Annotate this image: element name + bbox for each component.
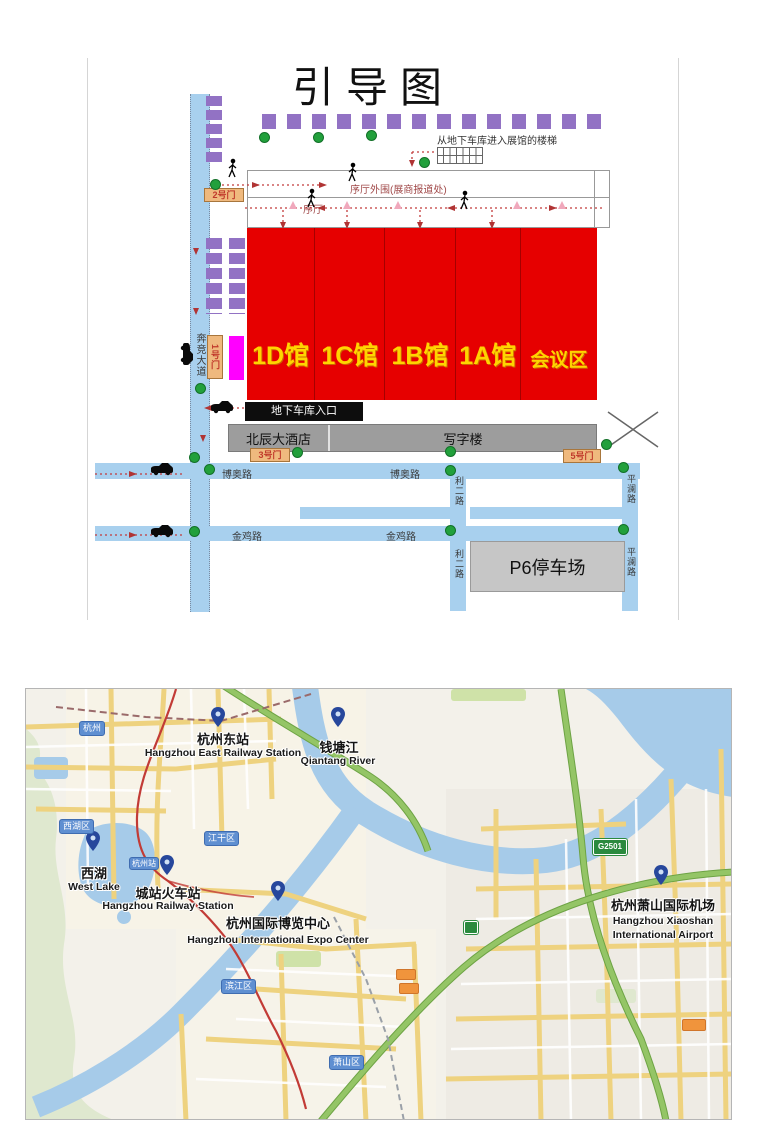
garage-entrance-sign: 地下车库入口 — [245, 402, 363, 421]
road-label: 利二路 — [453, 549, 466, 579]
booth-blocks-left-upper — [206, 96, 222, 164]
road-label: 奔竞大道 — [192, 333, 207, 377]
traffic-dot — [445, 465, 456, 476]
hall-label: 1C馆 — [315, 336, 384, 372]
hall-label: 1A馆 — [456, 336, 520, 372]
booth-blocks-top — [262, 114, 608, 129]
hall-1b: 1B馆 — [384, 228, 454, 400]
poi-label: 西湖 — [81, 863, 107, 882]
map-pin-west-lake — [86, 831, 100, 856]
traffic-dot — [618, 462, 629, 473]
gate-2: 2号门 — [204, 188, 244, 202]
hall-label: 1B馆 — [385, 336, 454, 372]
traffic-dot — [204, 464, 215, 475]
poi-label-en: Hangzhou Railway Station — [102, 900, 233, 912]
traffic-dot — [601, 439, 612, 450]
traffic-dot — [419, 157, 430, 168]
frame-left — [87, 58, 88, 620]
lobby-outer-label: 序厅外围(展商报道处) — [350, 181, 447, 196]
traffic-dot — [259, 132, 270, 143]
traffic-dot — [445, 446, 456, 457]
conference-area: 会议区 — [520, 228, 597, 400]
poi-label-en: Hangzhou Xiaoshan — [613, 915, 713, 927]
map-pin-qiantang — [331, 707, 345, 732]
poi-label-en: Hangzhou International Expo Center — [187, 934, 368, 946]
small-highway-shield — [464, 921, 478, 934]
poi-label-en: West Lake — [68, 881, 120, 893]
road-badge — [396, 969, 416, 980]
road-label: 金鸡路 — [232, 528, 262, 543]
stairs-icon — [437, 147, 483, 164]
traffic-dot — [210, 179, 221, 190]
road-mid-segment — [470, 507, 628, 519]
traffic-dot — [618, 524, 629, 535]
poi-label: 钱塘江 — [319, 737, 358, 756]
hall-label: 会议区 — [521, 345, 597, 372]
gate-5: 5号门 — [563, 449, 601, 463]
road-label: 博奥路 — [222, 466, 252, 481]
district-badge-jianggan: 江干区 — [204, 831, 239, 846]
stairs-note: 从地下车库进入展馆的楼梯 — [437, 132, 557, 147]
district-badge-binjiang: 滨江区 — [221, 979, 256, 994]
road-badge — [682, 1019, 706, 1031]
map-pin-expo — [271, 881, 285, 906]
road-label: 平澜路 — [625, 547, 638, 577]
traffic-dot — [445, 525, 456, 536]
poi-label: 杭州国际博览中心 — [226, 913, 330, 932]
road-boao — [95, 463, 640, 479]
office-label: 写字楼 — [330, 425, 596, 451]
exhibition-halls: 1D馆 1C馆 1B馆 1A馆 会议区 — [247, 228, 597, 400]
map-pin-airport — [654, 865, 668, 890]
lobby-divider — [248, 197, 609, 198]
gate-1: 1号门 — [207, 335, 223, 379]
page-title: 引导图 — [292, 54, 454, 115]
traffic-dot — [189, 452, 200, 463]
booth-blocks-left-b — [229, 238, 245, 314]
traffic-dot — [189, 526, 200, 537]
road-label: 平澜路 — [625, 474, 638, 504]
road-mid-segment — [300, 507, 456, 519]
traffic-dot — [195, 383, 206, 394]
gate-3: 3号门 — [250, 448, 290, 462]
traffic-dot — [292, 447, 303, 458]
lobby-box: 序厅外围(展商报道处) 序厅 — [247, 170, 610, 228]
poi-label-en: Hangzhou East Railway Station — [145, 747, 301, 759]
poi-label-en: Qiantang River — [301, 755, 376, 767]
district-badge-xiaoshan: 萧山区 — [329, 1055, 364, 1070]
poi-label: 杭州东站 — [197, 729, 249, 748]
venue-guide-diagram: 引导图 奔竞大道 博奥路 博奥路 金鸡路 金鸡路 利二路 利二路 平澜路 平澜路… — [0, 0, 757, 660]
poi-label: 杭州萧山国际机场 — [611, 895, 715, 914]
traffic-dot — [366, 130, 377, 141]
closed-crossing-icon — [608, 412, 658, 447]
hall-label: 1D馆 — [247, 336, 314, 372]
station-badge: 杭州站 — [129, 857, 159, 870]
lobby-divider — [594, 171, 595, 227]
road-jinji — [95, 526, 637, 541]
road-label: 利二路 — [453, 476, 466, 506]
road-label: 金鸡路 — [386, 528, 416, 543]
hall-1d: 1D馆 — [247, 228, 314, 400]
hall-1c: 1C馆 — [314, 228, 384, 400]
p6-parking: P6停车场 — [470, 541, 625, 592]
vip-entrance-block — [229, 336, 244, 380]
lobby-label: 序厅 — [303, 201, 323, 216]
hall-1a: 1A馆 — [455, 228, 520, 400]
booth-blocks-left-a — [206, 238, 222, 314]
poi-label-en: International Airport — [613, 929, 714, 941]
traffic-dot — [313, 132, 324, 143]
district-badge-xihu: 西湖区 — [59, 819, 94, 834]
road-label: 博奥路 — [390, 466, 420, 481]
hangzhou-overview-map: 杭州 西湖区 江干区 滨江区 萧山区 杭州站 G2501 杭州东站 Hangzh… — [25, 688, 732, 1120]
g2501-shield: G2501 — [593, 839, 627, 855]
frame-right — [678, 58, 679, 620]
city-badge: 杭州 — [79, 721, 105, 736]
road-badge — [399, 983, 419, 994]
map-pin-city-station — [160, 855, 174, 880]
